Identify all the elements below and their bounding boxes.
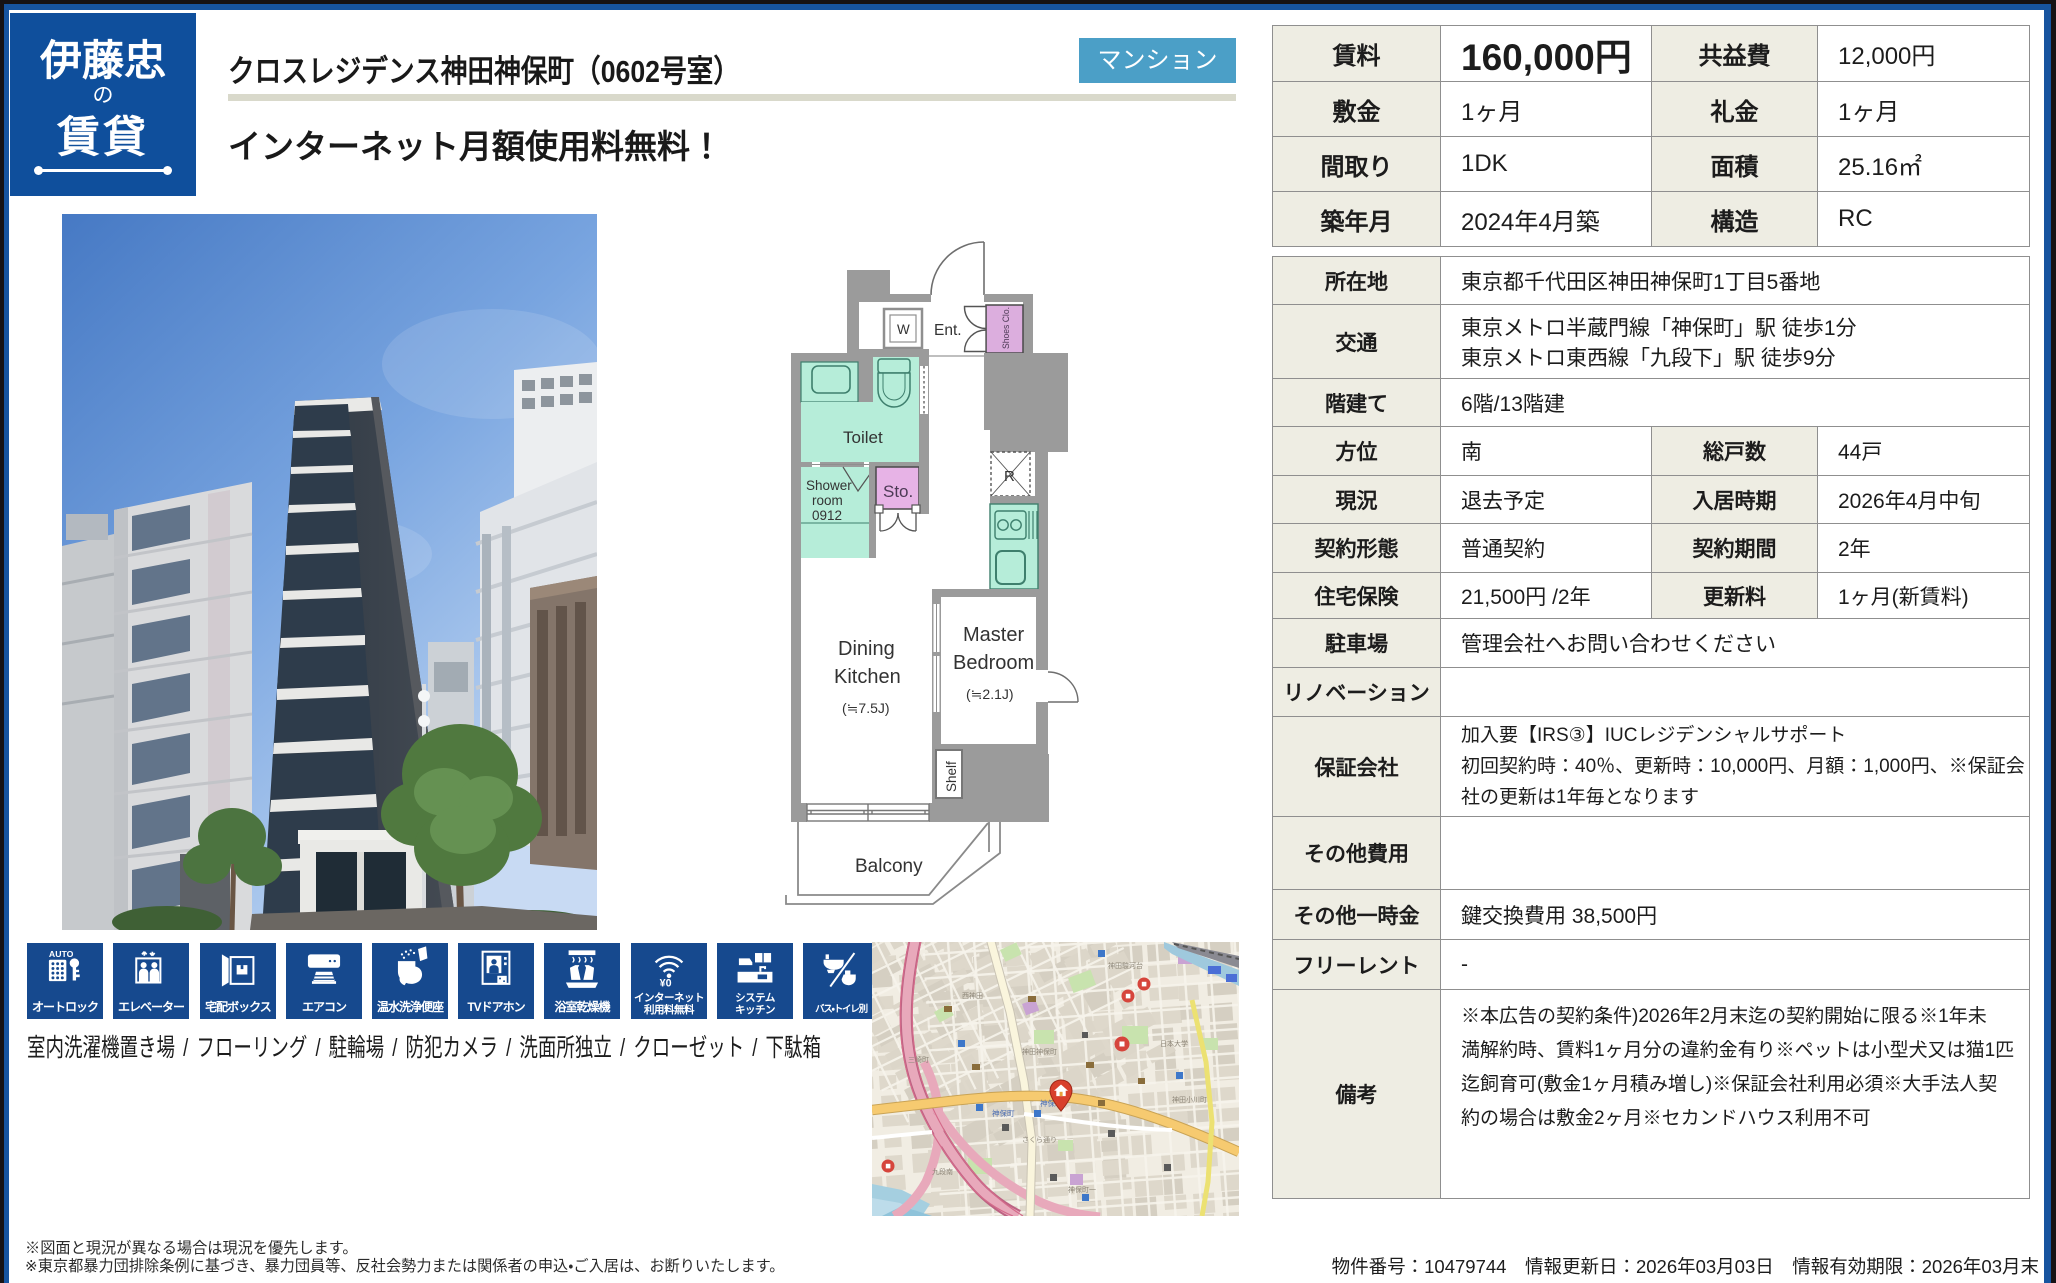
- svg-text:Kitchen: Kitchen: [834, 666, 901, 688]
- svg-text:さくら通り: さくら通り: [1022, 1135, 1057, 1144]
- svg-text:W: W: [897, 322, 910, 337]
- svg-text:AUTO: AUTO: [49, 949, 74, 959]
- svg-text:三崎町: 三崎町: [908, 1055, 929, 1064]
- svg-text:神田駿河台: 神田駿河台: [1108, 961, 1143, 970]
- svg-text:¥0: ¥0: [660, 978, 672, 990]
- svg-text:0912: 0912: [812, 508, 842, 523]
- svg-text:日本大学: 日本大学: [1160, 1039, 1188, 1048]
- svg-text:(≒2.1J): (≒2.1J): [966, 686, 1014, 702]
- svg-text:西神田: 西神田: [962, 991, 983, 1000]
- svg-text:Sto.: Sto.: [883, 482, 913, 501]
- svg-text:R: R: [1004, 468, 1015, 485]
- svg-text:Shelf: Shelf: [944, 761, 959, 792]
- svg-text:神保町: 神保町: [992, 1108, 1015, 1118]
- svg-text:Bedroom: Bedroom: [953, 652, 1034, 674]
- svg-text:神田神保町: 神田神保町: [1022, 1047, 1057, 1056]
- svg-text:神保町一: 神保町一: [1068, 1185, 1096, 1194]
- svg-text:Toilet: Toilet: [843, 428, 883, 447]
- svg-text:room: room: [812, 493, 843, 508]
- svg-text:Balcony: Balcony: [855, 856, 923, 877]
- svg-text:Shoes Clo.: Shoes Clo.: [1001, 307, 1012, 349]
- svg-text:Shower: Shower: [806, 478, 852, 493]
- svg-text:九段南: 九段南: [932, 1167, 953, 1176]
- svg-text:Ent.: Ent.: [934, 322, 962, 339]
- svg-text:Dining: Dining: [838, 638, 895, 660]
- svg-text:神田小川町: 神田小川町: [1172, 1095, 1207, 1104]
- svg-text:Master: Master: [963, 624, 1024, 646]
- svg-text:(≒7.5J): (≒7.5J): [842, 700, 890, 716]
